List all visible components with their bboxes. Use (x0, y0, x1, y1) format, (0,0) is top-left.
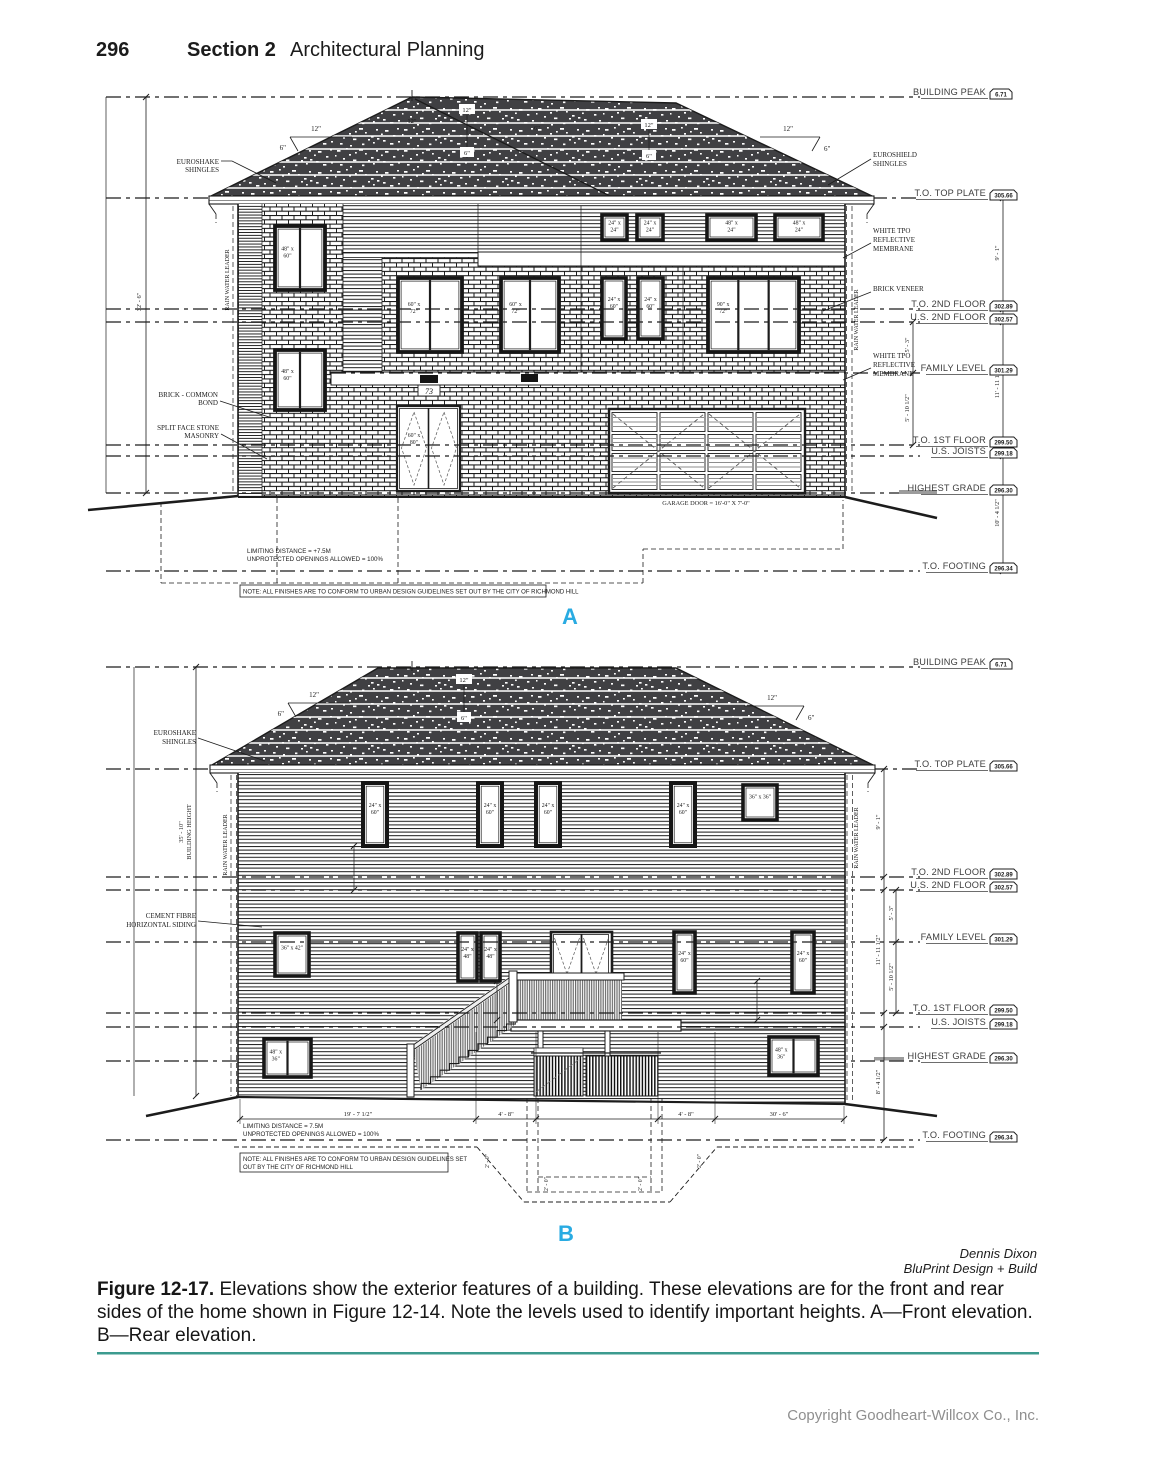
svg-text:24": 24" (727, 228, 735, 234)
svg-text:48" x: 48" x (793, 221, 806, 227)
svg-text:6": 6" (280, 144, 287, 152)
svg-text:MEMBRANE: MEMBRANE (873, 370, 913, 378)
svg-text:302.89: 302.89 (994, 304, 1013, 310)
svg-text:2' - 0": 2' - 0" (485, 1154, 491, 1168)
svg-text:8' - 4 1/2": 8' - 4 1/2" (875, 1069, 882, 1094)
svg-text:24" x: 24" x (542, 803, 555, 809)
svg-text:RAIN WATER LEADER: RAIN WATER LEADER (225, 249, 231, 310)
svg-text:36": 36" (777, 1054, 785, 1060)
svg-text:90" x: 90" x (717, 302, 730, 308)
svg-text:60" x: 60" x (509, 302, 522, 308)
svg-text:19' - 7 1/2": 19' - 7 1/2" (344, 1111, 373, 1118)
svg-text:FAMILY LEVEL: FAMILY LEVEL (921, 932, 986, 942)
svg-text:UNPROTECTED OPENINGS ALLOWED =: UNPROTECTED OPENINGS ALLOWED = 100% (243, 1131, 379, 1138)
svg-text:6": 6" (646, 153, 652, 160)
svg-text:BRICK VENEER: BRICK VENEER (873, 285, 924, 293)
svg-text:2' - 0": 2' - 0" (544, 1177, 550, 1191)
svg-text:72": 72" (719, 309, 727, 315)
svg-text:U.S. 2ND FLOOR: U.S. 2ND FLOOR (910, 880, 986, 890)
svg-text:296.34: 296.34 (994, 566, 1013, 572)
svg-text:60" x: 60" x (408, 433, 421, 439)
svg-text:4' - 8": 4' - 8" (498, 1111, 514, 1118)
svg-text:BUILDING PEAK: BUILDING PEAK (913, 87, 987, 97)
svg-text:12": 12" (767, 694, 777, 702)
svg-text:301.29: 301.29 (994, 368, 1013, 374)
svg-text:6": 6" (461, 715, 467, 722)
svg-text:60": 60" (679, 810, 687, 816)
svg-text:2' - 0": 2' - 0" (697, 1154, 703, 1168)
svg-text:48": 48" (486, 954, 494, 960)
svg-text:Dennis Dixon: Dennis Dixon (960, 1246, 1037, 1261)
svg-text:302.57: 302.57 (994, 317, 1013, 323)
svg-text:299.50: 299.50 (994, 440, 1013, 446)
svg-text:60": 60" (283, 376, 291, 382)
svg-text:60": 60" (371, 810, 379, 816)
svg-text:B: B (558, 1221, 574, 1246)
svg-text:B—Rear elevation.: B—Rear elevation. (97, 1325, 256, 1346)
svg-text:T.O. TOP PLATE: T.O. TOP PLATE (914, 759, 986, 769)
svg-text:299.18: 299.18 (994, 451, 1013, 457)
svg-text:24" x: 24" x (644, 297, 657, 303)
svg-text:SHINGLES: SHINGLES (162, 738, 196, 746)
svg-text:SHINGLES: SHINGLES (873, 160, 907, 168)
svg-text:301.29: 301.29 (994, 937, 1013, 943)
svg-text:36" x 42": 36" x 42" (281, 945, 303, 951)
svg-text:72": 72" (511, 309, 519, 315)
svg-text:4' - 8": 4' - 8" (678, 1111, 694, 1118)
svg-text:Section 2: Section 2 (187, 39, 276, 61)
svg-text:NOTE: ALL FINISHES ARE TO CONF: NOTE: ALL FINISHES ARE TO CONFORM TO URB… (243, 590, 579, 596)
svg-text:60": 60" (799, 958, 807, 964)
svg-text:24" x: 24" x (608, 297, 621, 303)
svg-text:305.66: 305.66 (994, 193, 1013, 199)
svg-text:24" x: 24" x (608, 221, 621, 227)
svg-text:73: 73 (425, 387, 433, 396)
svg-text:Figure 12-17. Elevations show: Figure 12-17. Elevations show the exteri… (97, 1279, 1005, 1300)
svg-text:12": 12" (311, 125, 321, 133)
svg-text:5' - 10 1/2": 5' - 10 1/2" (888, 963, 895, 991)
svg-text:24" x: 24" x (484, 803, 497, 809)
svg-text:EUROSHAKE: EUROSHAKE (154, 729, 196, 737)
svg-text:CEMENT FIBRE: CEMENT FIBRE (146, 912, 196, 920)
svg-text:12": 12" (407, 118, 417, 125)
svg-text:5' - 3": 5' - 3" (904, 337, 911, 352)
svg-text:T.O. 1ST FLOOR: T.O. 1ST FLOOR (913, 1003, 986, 1013)
svg-text:5' - 10 1/2": 5' - 10 1/2" (904, 394, 911, 422)
svg-text:9' - 1": 9' - 1" (875, 814, 882, 829)
svg-text:U.S. 2ND FLOOR: U.S. 2ND FLOOR (910, 312, 986, 322)
svg-text:296.34: 296.34 (994, 1135, 1013, 1141)
svg-text:30' - 6": 30' - 6" (770, 1111, 789, 1118)
svg-text:6": 6" (464, 150, 470, 157)
svg-text:RAIN WATER LEADER: RAIN WATER LEADER (854, 807, 860, 868)
svg-text:11' - 11 1/2": 11' - 11 1/2" (875, 934, 882, 965)
svg-text:48" x: 48" x (775, 1047, 788, 1053)
svg-text:LIMITING DISTANCE = +7.5M: LIMITING DISTANCE = +7.5M (247, 548, 331, 555)
svg-text:60": 60" (486, 810, 494, 816)
svg-text:302.57: 302.57 (994, 885, 1013, 891)
svg-text:12": 12" (644, 122, 654, 129)
svg-text:60": 60" (283, 253, 291, 259)
svg-text:EUROSHAKE: EUROSHAKE (177, 158, 219, 166)
svg-text:24": 24" (610, 228, 618, 234)
svg-text:WHITE TPO: WHITE TPO (873, 227, 910, 235)
svg-text:2' - 0": 2' - 0" (638, 1177, 644, 1191)
svg-text:36": 36" (272, 1056, 280, 1062)
svg-text:T.O. FOOTING: T.O. FOOTING (922, 1130, 986, 1140)
svg-text:BluPrint Design + Build: BluPrint Design + Build (904, 1261, 1038, 1276)
svg-text:48" x: 48" x (269, 1049, 282, 1055)
svg-text:36" x 36": 36" x 36" (749, 794, 771, 800)
svg-text:HORIZONTAL SIDING: HORIZONTAL SIDING (126, 921, 196, 929)
svg-text:24" x: 24" x (678, 951, 691, 957)
svg-text:24" x: 24" x (677, 803, 690, 809)
svg-text:24" x: 24" x (369, 803, 382, 809)
svg-text:72": 72" (410, 309, 418, 315)
svg-text:24": 24" (795, 228, 803, 234)
svg-text:GARAGE DOOR = 16'-0" X 7'-0": GARAGE DOOR = 16'-0" X 7'-0" (662, 500, 750, 507)
svg-text:UNPROTECTED OPENINGS ALLOWED =: UNPROTECTED OPENINGS ALLOWED = 100% (247, 556, 383, 563)
svg-text:24" x: 24" x (644, 221, 657, 227)
svg-text:BOND: BOND (198, 399, 218, 407)
svg-text:T.O. TOP PLATE: T.O. TOP PLATE (914, 188, 986, 198)
svg-text:5' - 3": 5' - 3" (888, 905, 895, 920)
svg-text:BUILDING HEIGHT: BUILDING HEIGHT (186, 804, 193, 860)
svg-text:12": 12" (459, 677, 469, 684)
svg-text:12": 12" (309, 691, 319, 699)
svg-text:RAIN WATER LEADER: RAIN WATER LEADER (223, 814, 229, 875)
svg-text:OUT BY THE CITY OF RICHMOND HI: OUT BY THE CITY OF RICHMOND HILL (243, 1165, 354, 1171)
svg-text:BRICK - COMMON: BRICK - COMMON (158, 391, 218, 399)
svg-text:35' - 10": 35' - 10" (178, 821, 185, 843)
svg-text:sides of the home shown in Fig: sides of the home shown in Figure 12-14.… (97, 1302, 1033, 1323)
svg-text:6": 6" (808, 714, 815, 722)
svg-text:EUROSHIELD: EUROSHIELD (873, 151, 917, 159)
svg-text:REFLECTIVE: REFLECTIVE (873, 236, 915, 244)
svg-text:6": 6" (278, 710, 285, 718)
svg-text:HIGHEST GRADE: HIGHEST GRADE (908, 483, 987, 493)
svg-text:SHINGLES: SHINGLES (185, 166, 219, 174)
svg-text:60": 60" (680, 958, 688, 964)
svg-text:48" x: 48" x (281, 369, 294, 375)
svg-text:Architectural Planning: Architectural Planning (290, 39, 485, 61)
svg-text:302.89: 302.89 (994, 872, 1013, 878)
svg-text:T.O. 2ND FLOOR: T.O. 2ND FLOOR (911, 299, 986, 309)
svg-text:296.30: 296.30 (994, 488, 1013, 494)
svg-text:MASONRY: MASONRY (184, 432, 219, 440)
svg-text:24": 24" (646, 228, 654, 234)
svg-text:REFLECTIVE: REFLECTIVE (873, 361, 915, 369)
svg-text:T.O. 2ND FLOOR: T.O. 2ND FLOOR (911, 867, 986, 877)
svg-text:305.66: 305.66 (994, 764, 1013, 770)
svg-text:60": 60" (544, 810, 552, 816)
svg-text:60" x: 60" x (408, 302, 421, 308)
svg-text:U.S. JOISTS: U.S. JOISTS (931, 446, 986, 456)
svg-text:299.50: 299.50 (994, 1008, 1013, 1014)
svg-text:FAMILY LEVEL: FAMILY LEVEL (921, 363, 986, 373)
svg-text:HIGHEST GRADE: HIGHEST GRADE (908, 1051, 987, 1061)
svg-text:48" x: 48" x (281, 246, 294, 252)
svg-text:296: 296 (96, 39, 129, 61)
svg-text:24" x: 24" x (461, 947, 474, 953)
svg-text:T.O. FOOTING: T.O. FOOTING (922, 561, 986, 571)
svg-text:MEMBRANE: MEMBRANE (873, 245, 913, 253)
svg-text:U.S. JOISTS: U.S. JOISTS (931, 1017, 986, 1027)
svg-text:296.30: 296.30 (994, 1056, 1013, 1062)
svg-text:24" x: 24" x (797, 951, 810, 957)
svg-text:6.71: 6.71 (995, 662, 1007, 668)
svg-text:BUILDING PEAK: BUILDING PEAK (913, 657, 987, 667)
svg-text:9' - 1": 9' - 1" (994, 245, 1001, 260)
svg-text:Copyright Goodheart-Willcox Co: Copyright Goodheart-Willcox Co., Inc. (787, 1407, 1039, 1424)
svg-text:12": 12" (462, 107, 472, 114)
svg-text:12": 12" (783, 125, 793, 133)
svg-text:LIMITING DISTANCE = 7.5M: LIMITING DISTANCE = 7.5M (243, 1123, 323, 1130)
svg-text:6": 6" (824, 145, 831, 153)
svg-text:SPLIT FACE STONE: SPLIT FACE STONE (157, 424, 219, 432)
svg-text:6": 6" (534, 125, 540, 132)
svg-text:24" x: 24" x (484, 947, 497, 953)
svg-text:48": 48" (463, 954, 471, 960)
svg-text:NOTE: ALL FINISHES ARE TO CONF: NOTE: ALL FINISHES ARE TO CONFORM TO URB… (243, 1157, 467, 1163)
svg-text:T.O. 1ST FLOOR: T.O. 1ST FLOOR (913, 435, 986, 445)
svg-text:48" x: 48" x (725, 221, 738, 227)
svg-text:299.18: 299.18 (994, 1022, 1013, 1028)
svg-text:6.71: 6.71 (995, 92, 1007, 98)
svg-text:A: A (562, 604, 578, 629)
svg-text:10' - 4 1/2": 10' - 4 1/2" (994, 499, 1001, 527)
